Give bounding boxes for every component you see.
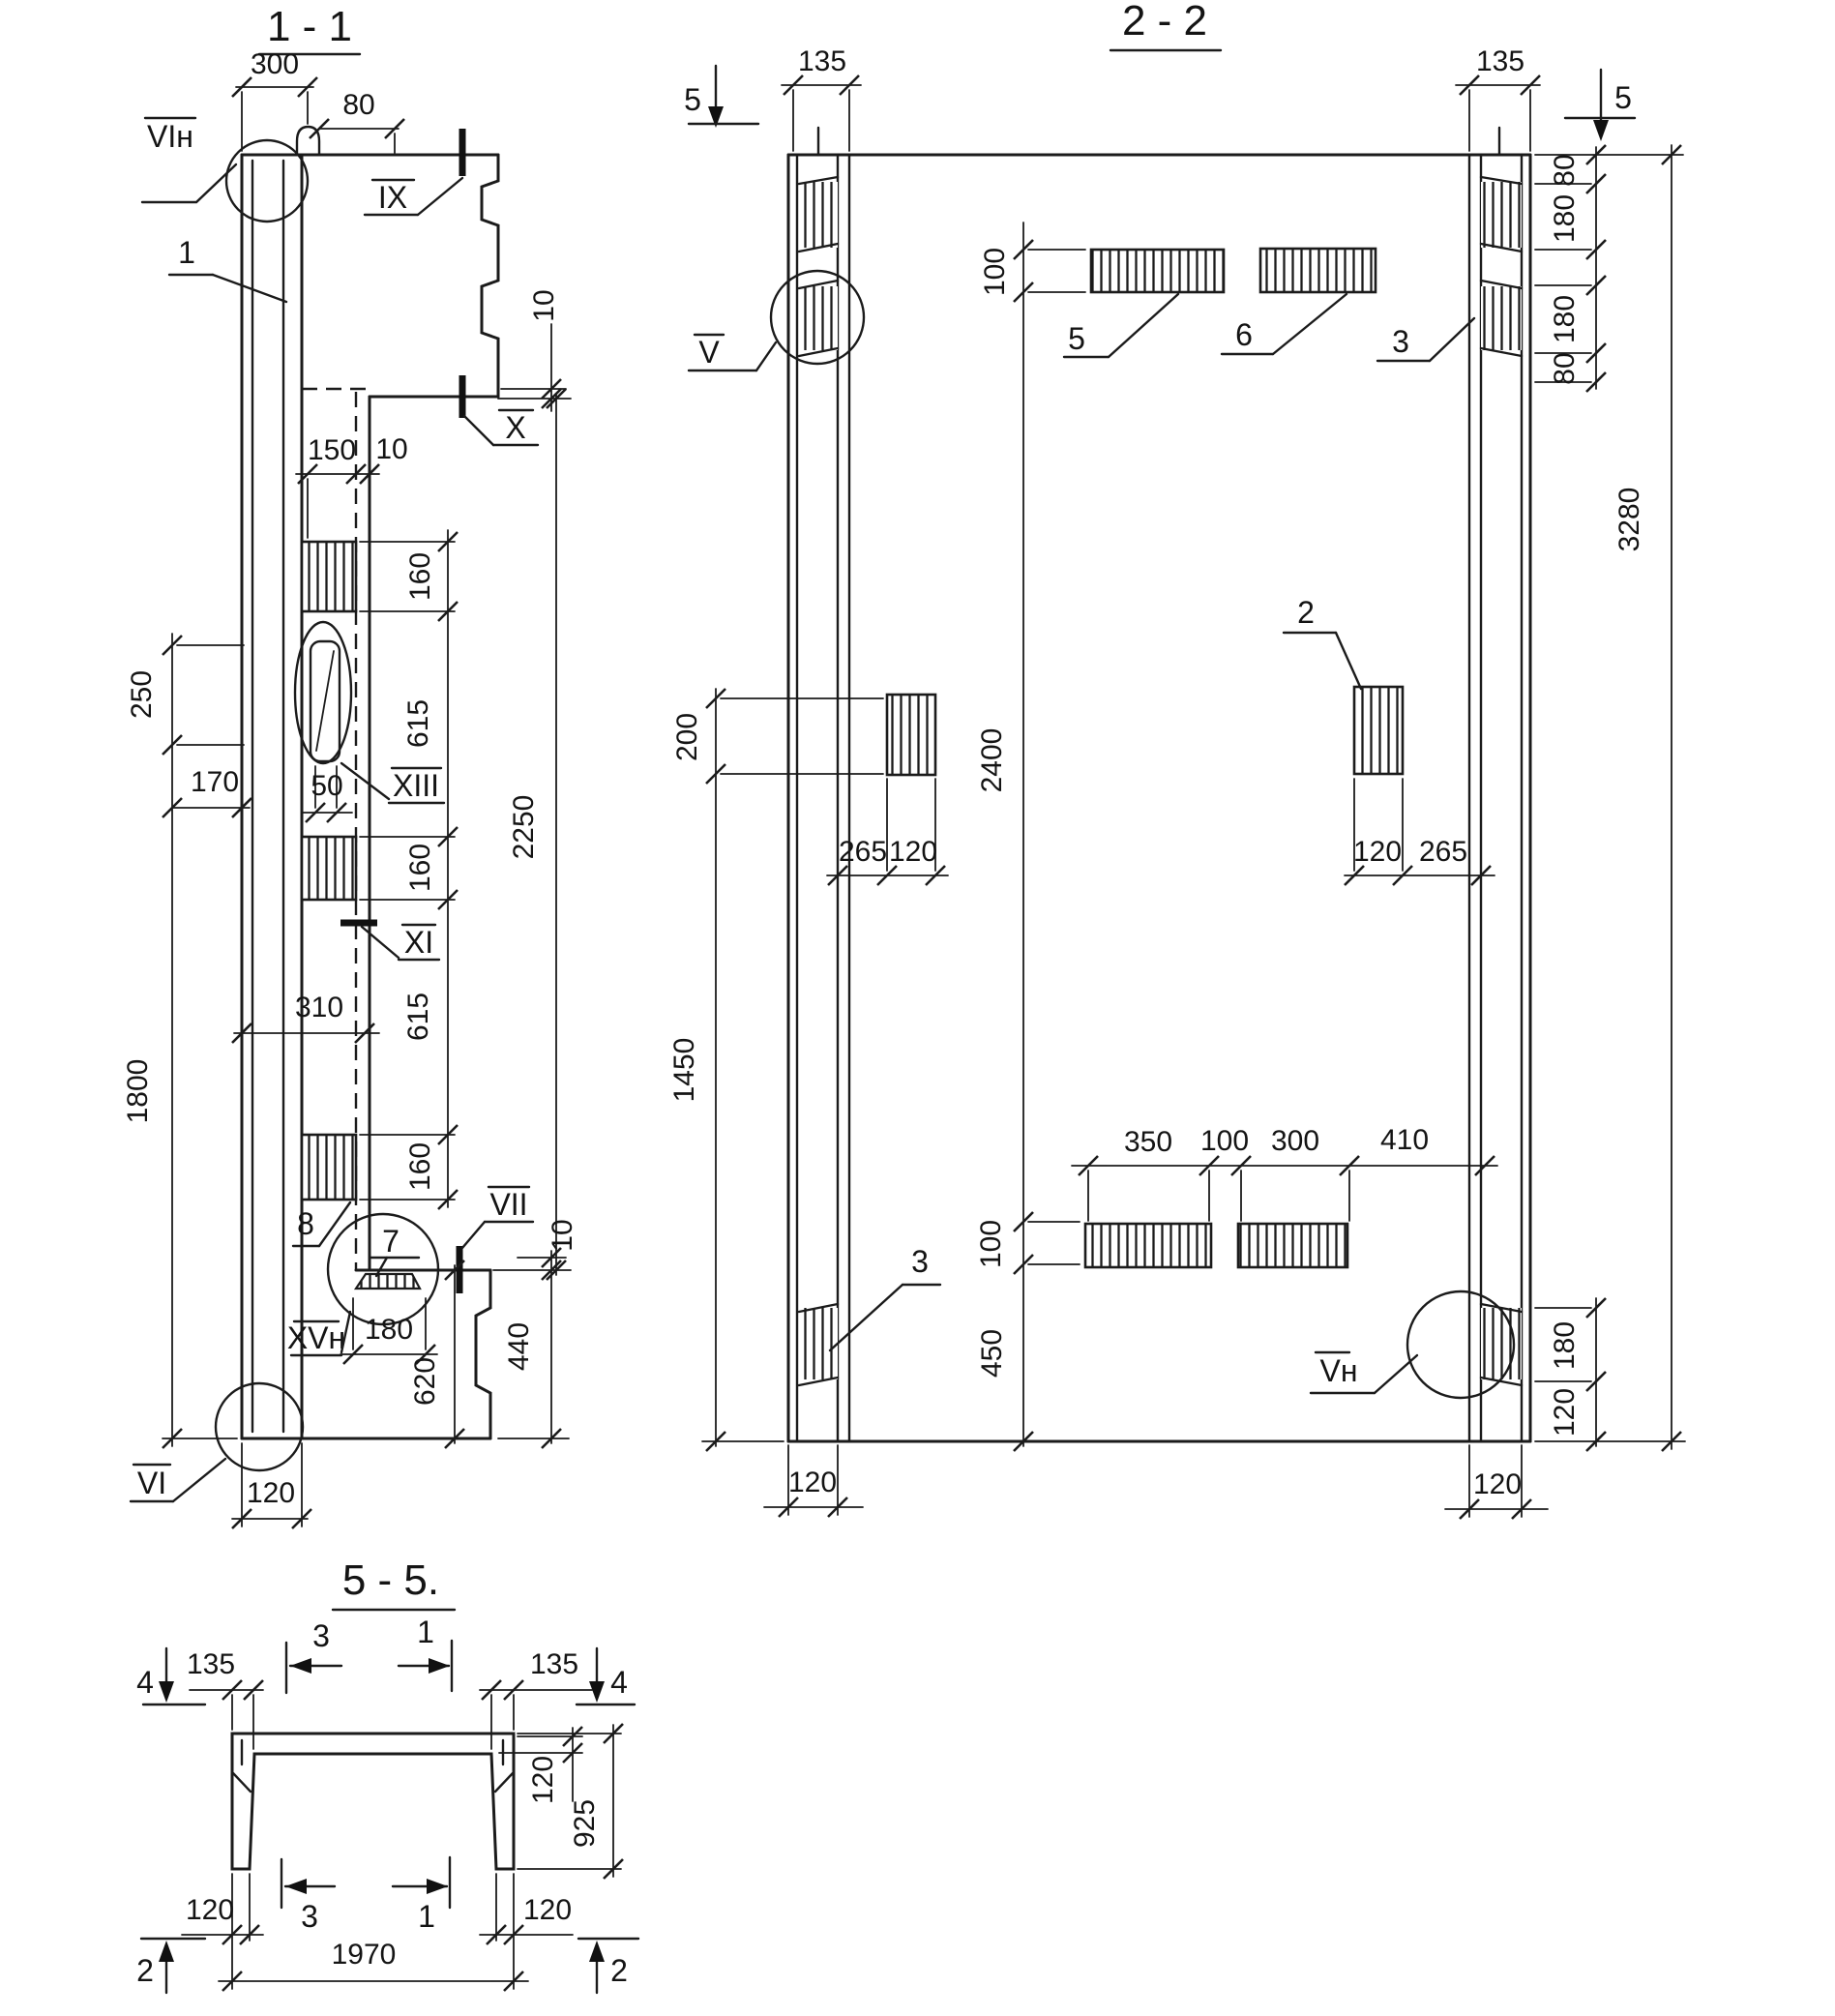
cut-marker-5-right: 5 <box>1565 70 1635 141</box>
callout-vi: VI <box>131 1459 225 1501</box>
label-3-bottom: 3 <box>911 1244 929 1279</box>
section-title-5-5: 5 - 5. <box>342 1556 439 1604</box>
callout-3-top: 3 <box>1377 318 1474 361</box>
dim-100b-label: 100 <box>975 1220 1007 1268</box>
callout-xi: XI <box>362 925 439 960</box>
down-arrow-icon <box>159 1681 174 1703</box>
corbel-notched-edge <box>482 155 498 397</box>
dim-170-label: 170 <box>191 766 239 798</box>
label-ix: IX <box>378 180 407 215</box>
embedded-plate-1 <box>302 542 356 611</box>
dim-80b-label: 80 <box>1549 352 1581 384</box>
dim-135r-label: 135 <box>1476 45 1524 77</box>
dim-310: 310 <box>232 992 379 1043</box>
dim-160b-label: 160 <box>404 844 436 892</box>
dim-1970: 1970 <box>219 1939 528 1991</box>
dim-100-label: 100 <box>1200 1125 1249 1157</box>
dim-120-bottom-1-1: 120 <box>232 1443 311 1528</box>
plate-5 <box>1091 250 1224 292</box>
dim-120r2-label: 120 <box>1549 1388 1581 1437</box>
dim-350-label: 350 <box>1124 1126 1172 1158</box>
label-vi: VI <box>137 1466 166 1500</box>
dim-250-label: 250 <box>126 670 158 719</box>
up-arrow-icon <box>589 1941 605 1962</box>
cut-marker-3-bottom: 3 <box>281 1859 335 1934</box>
cut-marker-3-top: 3 <box>286 1618 341 1693</box>
dim-300: 300 <box>232 48 317 151</box>
dim-265-120-left: 265 120 <box>827 779 948 885</box>
drawing-sheet: 1 - 1 300 <box>0 0 1835 2016</box>
label-xiii: XIII <box>393 768 439 803</box>
dim-chain-right-bottom: 180 120 <box>1535 1298 1606 1451</box>
label-xi: XI <box>404 925 433 960</box>
dim-chain-right-1-1: 160 615 160 615 160 <box>360 530 458 1209</box>
embedded-plate-3 <box>302 1135 356 1200</box>
dim-chain-left-2-2: 200 1450 <box>668 689 883 1451</box>
dim-1450-label: 1450 <box>668 1038 700 1103</box>
plate-mid-left <box>887 695 935 775</box>
dim-410-label: 410 <box>1380 1124 1429 1156</box>
dim-10-corbel: 10 <box>501 289 566 411</box>
dim-620-label: 620 <box>409 1357 441 1406</box>
label-xv-n: XVн <box>287 1320 345 1355</box>
dim-chain-right-top: 80 180 180 80 <box>1535 145 1683 392</box>
section-title-1-1: 1 - 1 <box>267 3 352 50</box>
cut-5-left-label: 5 <box>684 82 701 117</box>
channel-section-outline <box>232 1734 514 1869</box>
marker-3b-label: 3 <box>301 1899 318 1934</box>
right-arrow-icon <box>429 1658 450 1674</box>
dim-310-label: 310 <box>295 992 343 1023</box>
callout-vii: VII <box>462 1187 533 1248</box>
dim-120-bottom-left: 120 <box>764 1445 863 1517</box>
cut-5-right-label: 5 <box>1614 80 1632 115</box>
dim-80: 80 <box>310 89 404 153</box>
right-arrow-icon <box>427 1879 448 1894</box>
dim-135-right: 135 <box>1456 45 1540 151</box>
cut-marker-2-left: 2 <box>136 1939 205 1993</box>
callout-6: 6 <box>1222 294 1347 354</box>
dim-120-slab-label: 120 <box>527 1756 559 1804</box>
label-x: X <box>505 410 525 445</box>
dim-2400-label: 2400 <box>976 728 1008 793</box>
label-vii: VII <box>489 1187 527 1222</box>
callout-v-n: Vн <box>1311 1352 1417 1393</box>
right-column-ribs <box>1481 177 1522 1385</box>
dim-80a-label: 80 <box>1549 154 1581 186</box>
dim-120-bottom-right: 120 <box>1445 1445 1548 1519</box>
section-title-2-2: 2 - 2 <box>1122 0 1207 44</box>
plate-6 <box>1260 249 1376 292</box>
dim-1970-label: 1970 <box>332 1939 397 1971</box>
dim-10-shoe-label: 10 <box>547 1219 578 1251</box>
left-arrow-icon <box>290 1658 311 1674</box>
dim-10-corbel-label: 10 <box>528 289 560 321</box>
dim-135l-label: 135 <box>798 45 846 77</box>
detail-circle-vi-n <box>226 140 308 222</box>
dim-135r-55-label: 135 <box>530 1648 578 1680</box>
dim-120br-55-label: 120 <box>523 1894 572 1926</box>
marker-4l-label: 4 <box>136 1665 154 1700</box>
dim-180r-label: 180 <box>1549 1321 1581 1370</box>
dim-350-100-300-410: 350 100 300 410 <box>1072 1124 1497 1221</box>
dim-120bl-label: 120 <box>788 1467 837 1498</box>
callout-5: 5 <box>1064 294 1178 357</box>
dim-80-label: 80 <box>342 89 374 121</box>
callout-xv-n: XVн <box>287 1312 350 1355</box>
callout-2: 2 <box>1284 595 1361 689</box>
dim-300-label: 300 <box>251 48 299 80</box>
label-6: 6 <box>1235 317 1253 352</box>
weld-seam <box>356 1274 420 1289</box>
dim-120br-label: 120 <box>1473 1468 1522 1500</box>
up-arrow-icon <box>159 1941 174 1962</box>
label-v-n: Vн <box>1319 1353 1357 1388</box>
dim-120-slab: 120 <box>499 1727 582 1804</box>
callout-v: V <box>689 335 776 371</box>
dim-120r-label: 120 <box>1353 836 1402 868</box>
callout-vi-n: VIн <box>142 118 236 202</box>
cut-marker-4-right: 4 <box>577 1648 635 1705</box>
dim-180b-label: 180 <box>1549 295 1581 343</box>
dim-3280-label: 3280 <box>1613 488 1645 552</box>
marker-2r-label: 2 <box>610 1953 628 1988</box>
dim-200-label: 200 <box>671 713 703 761</box>
callout-7: 7 <box>370 1224 419 1276</box>
down-arrow-icon <box>589 1681 605 1703</box>
dim-chain-left-1-1: 250 1800 <box>122 634 244 1448</box>
dim-120bl-55-label: 120 <box>186 1894 234 1926</box>
dim-160a-label: 160 <box>404 552 436 601</box>
dim-120-label: 120 <box>247 1477 295 1509</box>
dim-10-label: 10 <box>375 433 407 465</box>
dim-925-label: 925 <box>569 1799 601 1848</box>
dim-100t-label: 100 <box>979 248 1011 296</box>
dim-150-10: 150 10 <box>296 433 408 538</box>
chamfer-line <box>233 1773 251 1792</box>
dim-150-label: 150 <box>308 434 356 466</box>
structural-drawing: 1 - 1 300 <box>0 0 1835 2016</box>
dim-265r-label: 265 <box>1419 836 1467 868</box>
dim-300-label: 300 <box>1271 1125 1319 1157</box>
dim-180a-label: 180 <box>1549 194 1581 243</box>
label-5: 5 <box>1068 321 1085 356</box>
dim-135-left: 135 <box>782 45 861 151</box>
dim-265l-label: 265 <box>839 836 887 868</box>
dim-120-265-right: 120 265 <box>1345 779 1495 885</box>
dim-2250-label: 2250 <box>508 795 540 860</box>
callout-ix: IX <box>365 178 462 215</box>
plate-bottom-a <box>1085 1224 1211 1267</box>
dim-1800-label: 1800 <box>122 1059 154 1124</box>
callout-3-bottom: 3 <box>830 1244 940 1350</box>
dim-120-bottom-left-55: 120 <box>182 1874 263 1989</box>
chamfer-line <box>495 1773 513 1792</box>
callout-8: 8 <box>293 1202 350 1246</box>
dim-615a-label: 615 <box>402 699 434 748</box>
callout-1: 1 <box>169 235 286 302</box>
shoe-notched-edge <box>476 1270 490 1438</box>
dim-450-label: 450 <box>976 1329 1008 1378</box>
cut-marker-5-left: 5 <box>684 66 758 128</box>
label-1: 1 <box>178 235 195 270</box>
dim-50: 50 <box>302 766 352 822</box>
view-5-5: 5 - 5. 4 4 135 135 3 <box>136 1556 638 1993</box>
dim-120l-label: 120 <box>889 836 937 868</box>
callout-x: X <box>464 410 538 445</box>
down-arrow-icon <box>1593 120 1609 141</box>
label-v: V <box>698 335 720 370</box>
dim-440-10: 440 10 <box>498 1219 578 1448</box>
dim-170: 170 <box>163 766 252 817</box>
cut-marker-1-bottom: 1 <box>393 1857 450 1934</box>
view-1-1: 1 - 1 300 <box>122 3 578 1528</box>
plate-bottom-b <box>1238 1224 1347 1267</box>
label-vi-n: VIн <box>147 119 193 154</box>
marker-2l-label: 2 <box>136 1953 154 1988</box>
dim-440-label: 440 <box>503 1322 535 1371</box>
cut-marker-2-right: 2 <box>578 1939 638 1993</box>
dim-2250: 2250 <box>493 389 571 1280</box>
marker-3t-label: 3 <box>312 1618 330 1653</box>
marker-1t-label: 1 <box>417 1615 434 1649</box>
view-2-2: 2 - 2 <box>668 0 1685 1519</box>
dim-120-bottom-right-55: 120 <box>480 1874 573 1989</box>
detail-circle-vi <box>216 1383 303 1470</box>
label-2: 2 <box>1297 595 1315 630</box>
embedded-plate-2 <box>302 837 356 900</box>
lifting-slot-detail <box>295 622 351 763</box>
dim-chain-central: 100 2400 100 450 <box>975 222 1085 1451</box>
label-8: 8 <box>297 1206 314 1241</box>
cut-marker-1-top: 1 <box>399 1615 452 1691</box>
left-column-ribs <box>799 177 838 1385</box>
dim-160c-label: 160 <box>404 1142 436 1191</box>
marker-1b-label: 1 <box>418 1899 435 1934</box>
panel-outline-1-1 <box>242 127 498 1438</box>
left-arrow-icon <box>285 1879 307 1894</box>
dim-615b-label: 615 <box>402 993 434 1041</box>
label-3-top: 3 <box>1392 324 1409 359</box>
marker-4r-label: 4 <box>610 1665 628 1700</box>
label-7: 7 <box>382 1224 400 1259</box>
dim-180-label: 180 <box>365 1314 413 1346</box>
dim-50-label: 50 <box>311 770 342 802</box>
plate-2 <box>1354 687 1403 774</box>
dim-135l-55-label: 135 <box>187 1648 235 1680</box>
